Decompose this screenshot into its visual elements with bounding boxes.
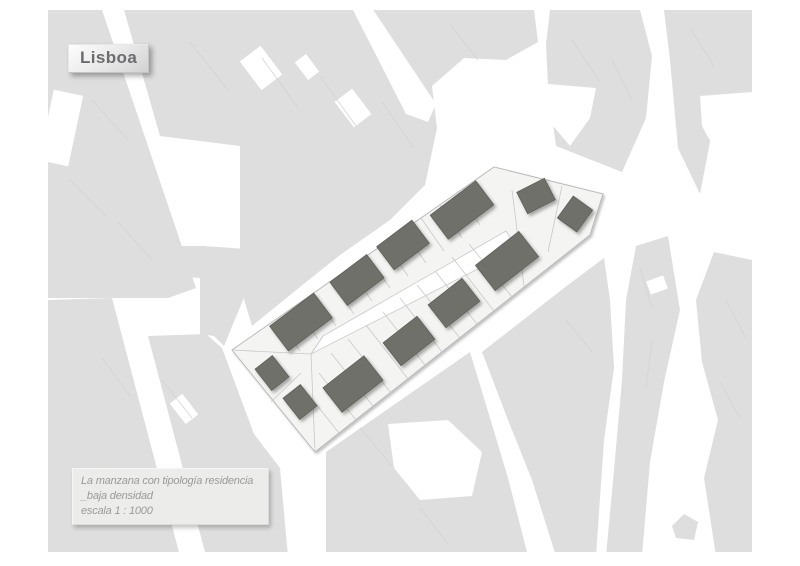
context-block xyxy=(696,252,752,556)
caption-line-3: escala 1 : 1000 xyxy=(81,504,268,519)
courtyard-patch xyxy=(515,71,536,92)
caption-box: La manzana con tipología residencia _baj… xyxy=(72,468,269,525)
map-title-badge: Lisboa xyxy=(68,44,149,73)
context-block xyxy=(728,464,752,492)
caption-line-2: _baja densidad xyxy=(81,489,268,504)
courtyard-patch xyxy=(700,92,752,228)
map-title: Lisboa xyxy=(80,48,137,67)
context-block xyxy=(672,514,698,540)
caption-line-1: La manzana con tipología residencia xyxy=(81,474,268,489)
site-plan-page: Lisboa La manzana con tipología residenc… xyxy=(0,0,800,566)
context-block xyxy=(606,236,680,556)
